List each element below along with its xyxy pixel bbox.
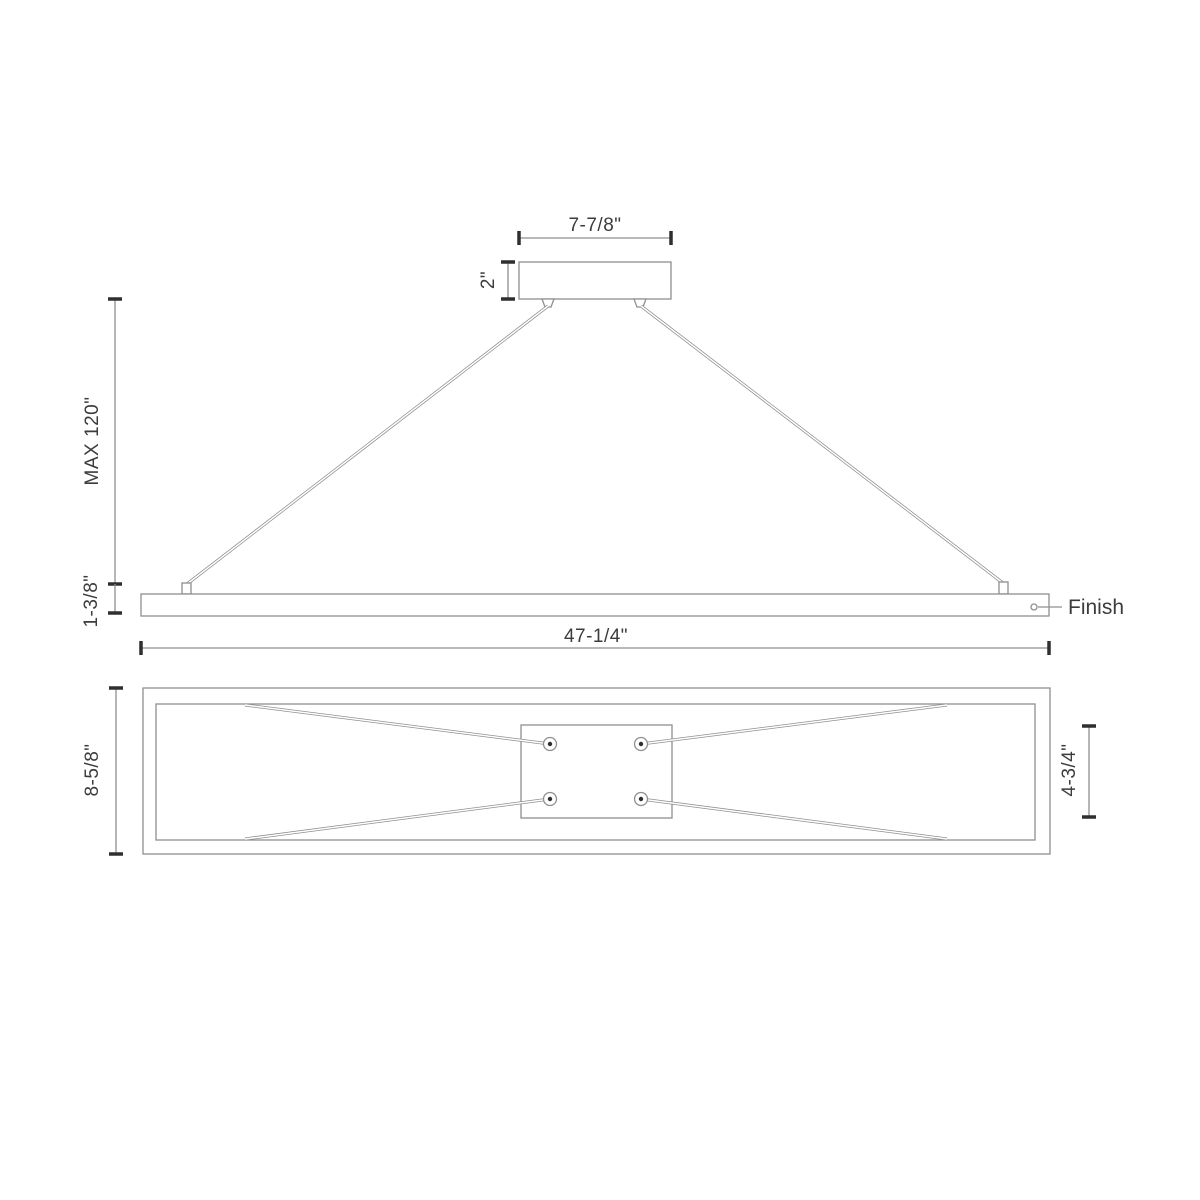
dim-label-bar-height: 1-3/8" [81, 574, 102, 627]
dim-label-max-suspension: MAX 120" [82, 397, 103, 486]
hole-center-dot [639, 742, 643, 746]
dim-label-plate-depth: 4-3/4" [1059, 743, 1080, 796]
dim-label-bar-length: 47-1/4" [564, 626, 628, 647]
cable-connector-right [634, 299, 646, 307]
ceiling-canopy [519, 262, 671, 299]
plan-canopy-plate [521, 725, 672, 818]
dim-canopy-height: 2" [478, 262, 515, 299]
elevation-view: 7-7/8" 2" Fin [81, 215, 1124, 655]
finish-indicator-dot [1031, 604, 1037, 610]
plan-view: 8-5/8" 4-3/4" [82, 688, 1096, 854]
cable-gripper-left [182, 583, 191, 594]
dim-bar-length: 47-1/4" [141, 626, 1049, 655]
suspension-cable-right [641, 306, 1003, 583]
suspension-cable-left [187, 306, 548, 584]
dim-label-body-depth: 8-5/8" [82, 743, 103, 796]
hole-center-dot [639, 797, 643, 801]
dim-max-suspension: MAX 120" [82, 299, 122, 584]
hole-center-dot [548, 797, 552, 801]
cable-line [187, 306, 548, 584]
hole-center-dot [548, 742, 552, 746]
fixture-bar [141, 594, 1049, 616]
cable-gripper-right [999, 582, 1008, 594]
dim-label-canopy-width: 7-7/8" [568, 215, 621, 236]
dim-canopy-width: 7-7/8" [519, 215, 671, 245]
plate-hole-top-right [635, 738, 648, 751]
dim-label-canopy-height: 2" [478, 271, 499, 289]
plate-hole-top-left [544, 738, 557, 751]
plate-hole-bottom-right [635, 793, 648, 806]
cable-connector-left [542, 299, 554, 307]
dim-body-depth: 8-5/8" [82, 688, 123, 854]
dim-plate-depth: 4-3/4" [1059, 726, 1096, 817]
dimension-drawing: 7-7/8" 2" Fin [0, 0, 1200, 1200]
plate-hole-bottom-left [544, 793, 557, 806]
drawing-canvas: 7-7/8" 2" Fin [0, 0, 1200, 1200]
finish-label: Finish [1068, 596, 1124, 619]
cable-line [641, 306, 1003, 583]
